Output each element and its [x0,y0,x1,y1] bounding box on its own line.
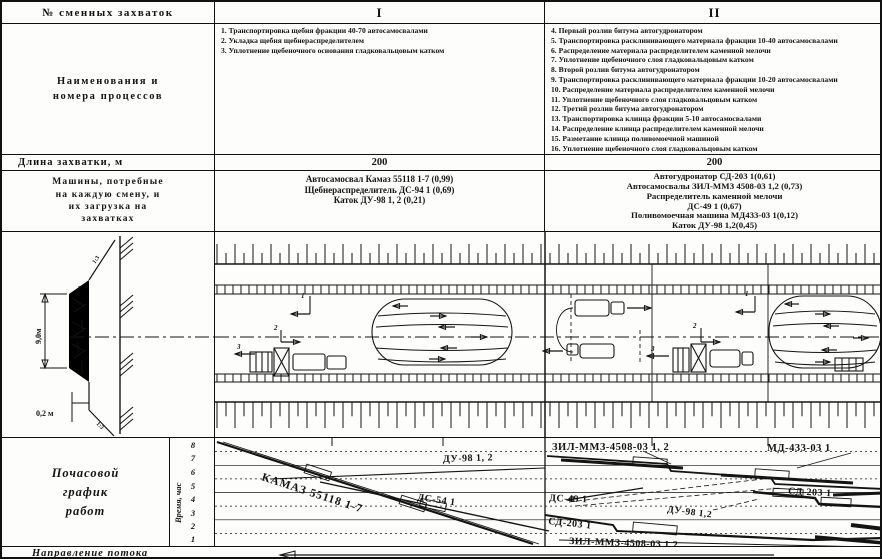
truck-symbol [580,344,614,358]
processes-row-label: Наименования и номера процессов [2,24,215,155]
flow-direction-row: Направление потока [2,547,882,559]
subsection-ticks [332,438,768,446]
roller-symbol [250,352,272,372]
label-zil-top: ЗИЛ-ММЗ-4508-03 1, 2 [552,442,669,453]
hour-tick: 5 [178,481,208,491]
section-1-number: I [376,5,382,21]
schedule-chart-cell: КАМАЗ 55118 1-7 ДУ-98 1, 2 ДС-54 1 ЗИЛ-М… [215,438,882,547]
arrow-number: 3 [236,343,241,351]
arrow-number: 1 [301,292,305,300]
schedule-label-line: работ [52,502,120,521]
bottom-edge-ticks [217,374,881,382]
top-slope-line: 1:3 [89,240,115,280]
header-zahvatki: № сменных захваток [2,2,215,24]
hour-tick: 8 [178,440,208,450]
process-item: 8. Второй розлив битума автогудронатором [551,66,861,75]
length-section-2: 200 [545,155,882,171]
cross-section-cell: 1:3 1:3 9,0м 0,2 м [2,232,215,438]
numbered-arrow-1: 1 [291,292,310,316]
machines-label-line: на каждую смену, и [52,189,164,201]
flow-chart-sheet: № сменных захваток I II Наименования и н… [0,0,882,559]
process-item: 2. Укладка щебня щебнераспределителем [221,37,449,46]
process-item: 7. Уплотнение щебеночного слоя гладковал… [551,56,861,65]
process-list-section-2: 4. Первый розлив битума автогудронатором… [545,24,882,155]
truck-direction-arrow [543,349,563,354]
process-item: 1. Транспортировка щебня фракции 40-70 а… [221,27,449,36]
machine-train-1 [250,348,346,376]
machines-label-line: их загрузка на [52,201,164,213]
bottom-slope-line: 1:3 [89,382,114,436]
truck-symbol [293,354,325,370]
label-ds49: ДС-49 1 [549,493,588,505]
machines-label-line: захватках [52,213,164,225]
process-item: 16. Уплотнение щебеночного слоя гладкова… [551,145,861,154]
process-item: 10. Распределение материала распределите… [551,86,861,95]
header-section-1: I [215,2,545,24]
numbered-arrow-3b: 3 [647,345,669,358]
schedule-chart: КАМАЗ 55118 1-7 ДУ-98 1, 2 ДС-54 1 ЗИЛ-М… [215,438,882,547]
hour-tick: 6 [178,467,208,477]
road-width-label: 9,0м [34,328,43,344]
header-section-2: II [545,2,882,24]
shoulder-dimension: 0,2 м [36,392,89,422]
machine-line: Автосамосвал Камаз 55118 1-7 (0,99) [215,174,544,185]
road-plan-cell: 1 2 3 [215,232,882,438]
arrow-number: 2 [273,324,278,332]
slope-label: 1:3 [95,421,105,431]
process-item: 12. Третий розлив битума автогудронаторо… [551,105,861,114]
bottom-shoulder-ticks [217,402,882,428]
process-item: 6. Распределение материала распределител… [551,47,861,56]
hour-tick: 7 [178,453,208,463]
roller-pass-arrows [393,304,487,362]
road-plan-drawing: 1 2 3 [215,232,882,438]
length-value-1: 200 [372,157,388,168]
schedule-label-line: график [52,483,120,502]
process-item: 3. Уплотнение щебеночного основания глад… [221,47,449,56]
top-shoulder-ticks [217,244,882,264]
compaction-zone-2 [769,296,881,371]
machine-line: Щебнераспределитель ДС-94 1 (0,69) [215,185,544,196]
truck-cab [567,344,578,355]
label-zil-bottom: ЗИЛ-ММЗ-4508-03 1,2 [569,536,678,547]
machines-section-2: Автогудронатор СД-203 1(0,61) Автосамосв… [545,171,882,232]
truck-cab [611,302,624,314]
roller-symbol [673,348,689,372]
schedule-row-label: Почасовой график работ [2,438,170,547]
numbered-arrow-2b: 2 [692,322,720,344]
top-edge-ticks [217,285,881,294]
arrow-number: 3 [650,345,655,353]
cross-section-drawing: 1:3 1:3 9,0м 0,2 м [2,232,215,438]
process-item: 14. Распределение клинца распределителем… [551,125,861,134]
process-item: 11. Уплотнение щебеночного слоя гладкова… [551,96,861,105]
arrow-number: 1 [745,290,749,298]
pavement-trapezoid [69,280,89,382]
machine-train-2 [673,344,753,372]
label-sd203-left: СД-203 1 [548,516,592,531]
process-item: 4. Первый розлив битума автогудронатором [551,27,861,36]
hour-tick: 2 [178,521,208,531]
label-du98-II: ДУ-98 1,2 [667,505,713,520]
section-2-number: II [708,5,720,21]
length-label: Длина захватки, м [18,157,123,168]
process-item: 5. Транспортировка расклинивающего матер… [551,37,861,46]
numbered-arrow-2: 2 [273,324,300,344]
slope-hatch-marks [120,237,133,430]
process-item: 15. Разметание клинца поливомоечной маши… [551,135,861,144]
hour-tick: 3 [178,508,208,518]
length-row-label: Длина захватки, м [2,155,215,171]
header-zahvatki-label: № сменных захваток [42,7,173,19]
schedule-line-zil-top [547,451,882,489]
processes-label-line1: Наименования и [53,74,163,89]
numbered-arrow-3: 3 [235,343,255,356]
process-item: 9. Транспортировка расклинивающего матер… [551,76,861,85]
truck-symbol [575,300,609,316]
machines-row-label: Машины, потребные на каждую смену, и их … [2,171,215,232]
label-kamaz: КАМАЗ 55118 1-7 [260,471,364,515]
tanker-symbol [710,350,740,367]
truck-symbol [327,356,346,369]
arrow-number: 2 [692,322,697,330]
uturn-trucks [557,294,641,364]
label-md433: МД-433-03 1 [767,443,831,454]
flow-direction-arrow [2,547,882,559]
truck-direction-arrow [627,306,651,311]
machines-section-1: Автосамосвал Камаз 55118 1-7 (0,99) Щебн… [215,171,545,232]
machine-line: Каток ДУ-98 1, 2 (0,21) [215,195,544,206]
hour-tick: 4 [178,494,208,504]
machines-label-line: Машины, потребные [52,176,164,188]
shoulder-label: 0,2 м [36,409,54,418]
schedule-label-line: Почасовой [52,464,120,483]
process-item: 13. Транспортировка клинца фракции 5-10 … [551,115,861,124]
label-sd203-right: СД-203 1 [788,486,832,499]
machine-line: Каток ДУ-98 1,2(0,45) [545,221,882,231]
process-list-section-1: 1. Транспортировка щебня фракции 40-70 а… [215,24,545,155]
length-value-2: 200 [707,157,723,168]
tanker-cab [742,352,753,365]
processes-label-line2: номера процессов [53,89,163,104]
length-section-1: 200 [215,155,545,171]
hour-tick: 1 [178,534,208,544]
label-du98-I: ДУ-98 1, 2 [443,452,494,465]
width-dimension: 9,0м [34,294,67,368]
compaction-zone-1 [372,299,512,365]
